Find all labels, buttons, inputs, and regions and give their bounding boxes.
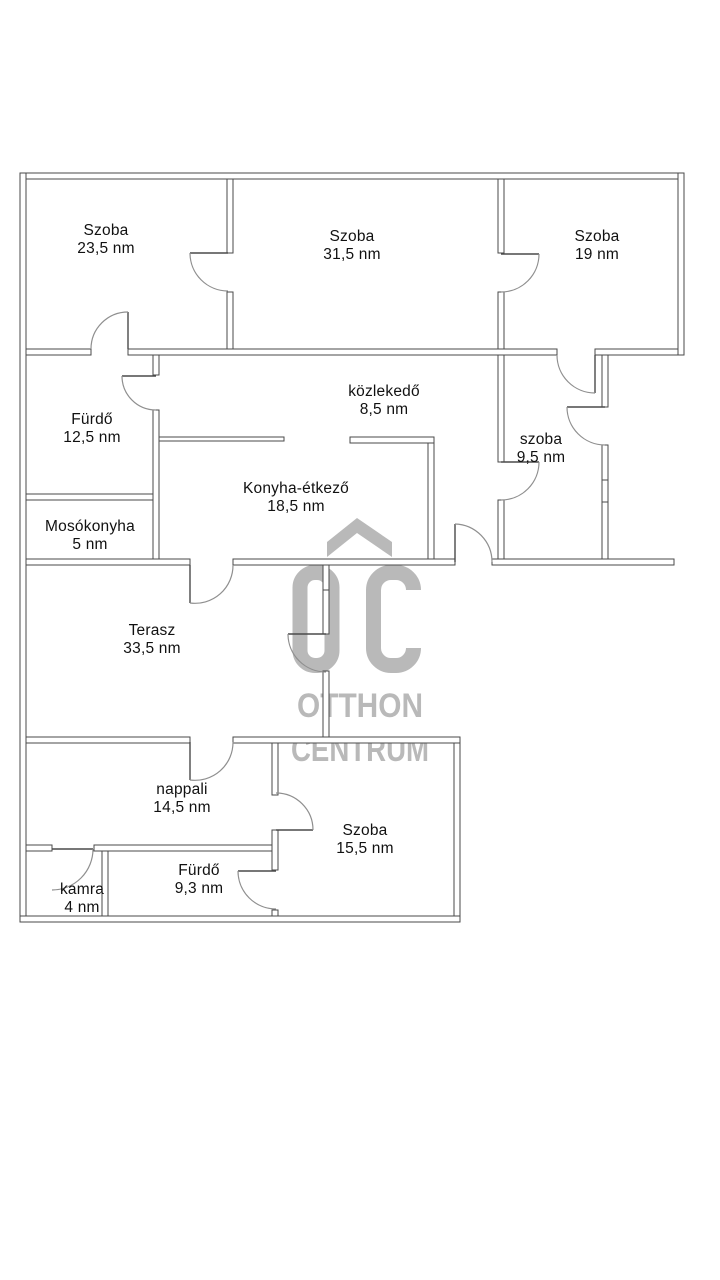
room-label-furdo-1: Fürdő 12,5 nm [63, 411, 120, 446]
room-area: 12,5 nm [63, 429, 120, 447]
room-label-mosokonyha: Mosókonyha 5 nm [45, 518, 135, 553]
room-area: 14,5 nm [153, 799, 210, 817]
room-area: 31,5 nm [323, 246, 380, 264]
room-area: 9,5 nm [517, 449, 566, 467]
room-label-furdo-2: Fürdő 9,3 nm [175, 862, 224, 897]
floor-plan-page: OTTHON CENTRUM [0, 0, 720, 1280]
room-name: kamra [60, 881, 104, 899]
room-area: 33,5 nm [123, 640, 180, 658]
room-area: 19 nm [575, 246, 620, 264]
room-label-konyha-etkezo: Konyha-étkező 18,5 nm [243, 480, 349, 515]
room-name: Szoba [336, 822, 393, 840]
watermark: OTTHON CENTRUM [291, 518, 429, 769]
room-name: közlekedő [348, 383, 420, 401]
room-name: Mosókonyha [45, 518, 135, 536]
room-label-nappali: nappali 14,5 nm [153, 781, 210, 816]
room-name: Fürdő [63, 411, 120, 429]
room-name: Fürdő [175, 862, 224, 880]
room-label-szoba-1: Szoba 23,5 nm [77, 222, 134, 257]
room-label-szoba-4: szoba 9,5 nm [517, 431, 566, 466]
room-area: 4 nm [60, 899, 104, 917]
room-name: Szoba [323, 228, 380, 246]
room-label-kozlekedo: közlekedő 8,5 nm [348, 383, 420, 418]
room-name: nappali [153, 781, 210, 799]
roof-chevron-icon [327, 518, 392, 557]
room-area: 15,5 nm [336, 840, 393, 858]
room-name: Konyha-étkező [243, 480, 349, 498]
room-area: 5 nm [45, 536, 135, 554]
room-name: Terasz [123, 622, 180, 640]
watermark-line1: OTTHON [297, 687, 423, 725]
room-area: 18,5 nm [243, 498, 349, 516]
room-area: 8,5 nm [348, 401, 420, 419]
room-name: Szoba [575, 228, 620, 246]
room-label-kamra: kamra 4 nm [60, 881, 104, 916]
logo-letter-c [374, 573, 414, 666]
room-area: 9,3 nm [175, 880, 224, 898]
room-name: Szoba [77, 222, 134, 240]
room-label-terasz: Terasz 33,5 nm [123, 622, 180, 657]
room-label-szoba-2: Szoba 31,5 nm [323, 228, 380, 263]
room-label-szoba-5: Szoba 15,5 nm [336, 822, 393, 857]
room-area: 23,5 nm [77, 240, 134, 258]
floor-plan-drawing: OTTHON CENTRUM [0, 0, 720, 1280]
room-label-szoba-3: Szoba 19 nm [575, 228, 620, 263]
room-name: szoba [517, 431, 566, 449]
